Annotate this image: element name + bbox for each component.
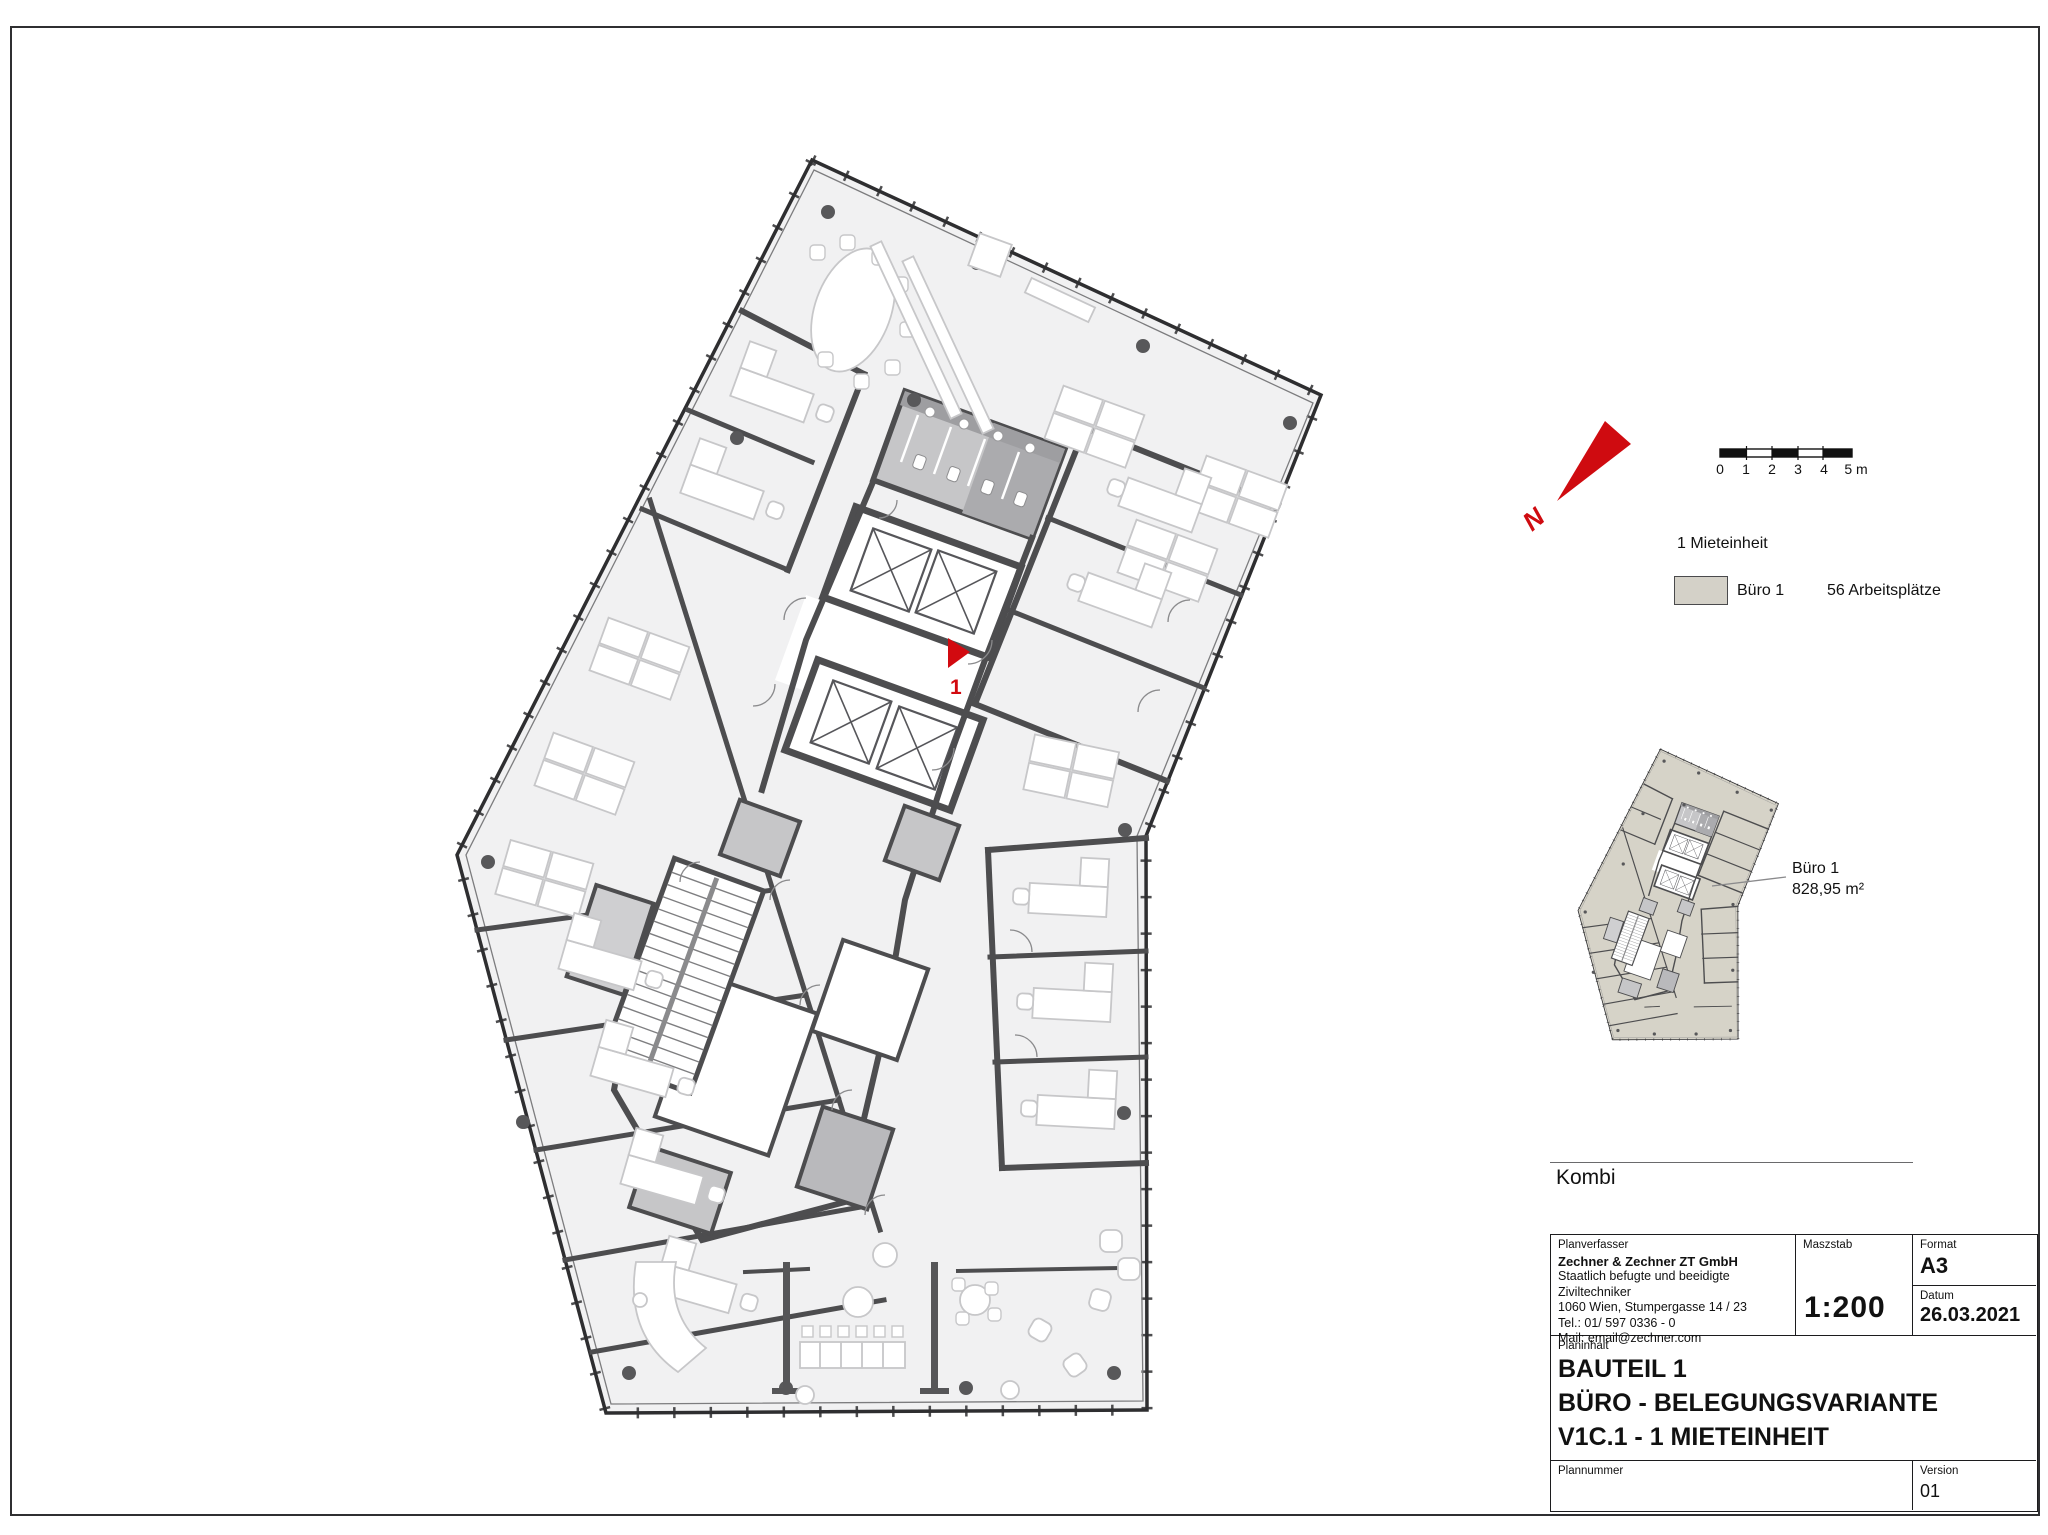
cell-datum: Datum 26.03.2021 xyxy=(1913,1286,2036,1336)
datum-label: Datum xyxy=(1920,1290,2036,1302)
mini-plan-callout: Büro 1 828,95 m² xyxy=(1792,858,1864,900)
cell-plannummer: Plannummer xyxy=(1551,1461,1913,1510)
legend-title: 1 Mieteinheit xyxy=(1677,535,1768,553)
company-subtitle: Staatlich befugte und beeidigte Ziviltec… xyxy=(1558,1269,1795,1300)
legend-item-value: 56 Arbeitsplätze xyxy=(1827,582,1941,600)
legend-swatch xyxy=(1674,576,1728,605)
company-tel: Tel.: 01/ 597 0336 - 0 xyxy=(1558,1316,1795,1332)
cell-maszstab: Maszstab 1:200 xyxy=(1796,1235,1913,1336)
scale-tick-3: 3 xyxy=(1794,461,1802,477)
planinhalt-label: Planinhalt xyxy=(1558,1340,2036,1352)
cell-version: Version 01 xyxy=(1913,1461,2036,1510)
scale-tick-2: 2 xyxy=(1768,461,1776,477)
north-arrow-wedge xyxy=(1557,421,1631,501)
legend-item-label: Büro 1 xyxy=(1737,582,1784,600)
callout-room-area: 828,95 m² xyxy=(1792,879,1864,900)
scale-tick-5: 5 m xyxy=(1844,461,1867,477)
kombi-rule xyxy=(1550,1162,1913,1163)
maszstab-label: Maszstab xyxy=(1803,1239,1912,1251)
plan-sheet: 1 N 0 1 2 3 4 5 m 1 xyxy=(0,0,2048,1535)
plannummer-label: Plannummer xyxy=(1558,1465,1912,1477)
scale-tick-1: 1 xyxy=(1742,461,1750,477)
mini-overview-plan xyxy=(1578,749,1778,1040)
cell-format: Format A3 xyxy=(1913,1235,2036,1286)
format-value: A3 xyxy=(1920,1253,2036,1279)
scale-tick-4: 4 xyxy=(1820,461,1828,477)
planinhalt-line3: V1C.1 - 1 MIETEINHEIT xyxy=(1558,1420,2036,1454)
cell-planverfasser: Planverfasser Zechner & Zechner ZT GmbH … xyxy=(1551,1235,1796,1336)
version-value: 01 xyxy=(1920,1481,2036,1502)
company-address: 1060 Wien, Stumpergasse 14 / 23 xyxy=(1558,1300,1795,1316)
maszstab-value: 1:200 xyxy=(1804,1291,1886,1325)
planinhalt-line2: BÜRO - BELEGUNGSVARIANTE xyxy=(1558,1386,2036,1420)
datum-value: 26.03.2021 xyxy=(1920,1304,2036,1327)
format-label: Format xyxy=(1920,1239,2036,1251)
scale-tick-0: 0 xyxy=(1716,461,1724,477)
company-name: Zechner & Zechner ZT GmbH xyxy=(1558,1254,1795,1269)
cell-planinhalt: Planinhalt BAUTEIL 1 BÜRO - BELEGUNGSVAR… xyxy=(1551,1336,2036,1461)
scale-bar xyxy=(1720,446,1852,460)
kombi-label: Kombi xyxy=(1556,1166,1616,1190)
north-arrow: N xyxy=(1517,421,1631,537)
callout-room-name: Büro 1 xyxy=(1792,858,1864,879)
north-label: N xyxy=(1517,501,1552,537)
planinhalt-line1: BAUTEIL 1 xyxy=(1558,1352,2036,1386)
title-block: Planverfasser Zechner & Zechner ZT GmbH … xyxy=(1550,1234,2038,1512)
version-label: Version xyxy=(1920,1465,2036,1477)
main-floor-plan xyxy=(457,160,1321,1413)
planverfasser-label: Planverfasser xyxy=(1558,1239,1795,1251)
